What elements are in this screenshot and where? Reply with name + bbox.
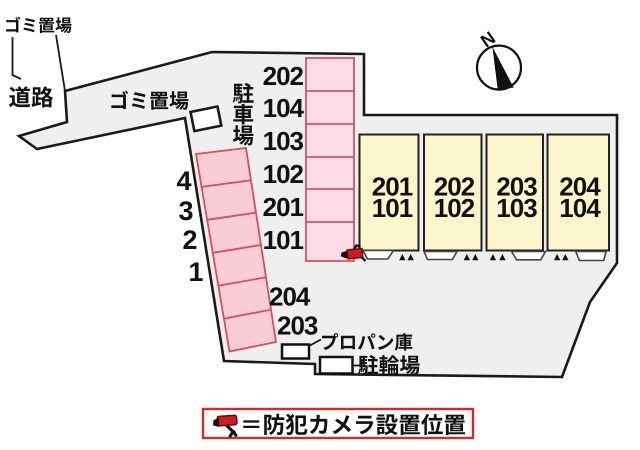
svg-text:201: 201 bbox=[263, 192, 304, 222]
svg-text:202: 202 bbox=[263, 61, 304, 91]
svg-text:2: 2 bbox=[182, 225, 197, 255]
svg-text:103: 103 bbox=[263, 126, 304, 156]
svg-text:102: 102 bbox=[263, 159, 304, 189]
svg-text:104: 104 bbox=[263, 93, 305, 123]
svg-text:1: 1 bbox=[188, 257, 203, 287]
svg-text:203: 203 bbox=[277, 311, 318, 341]
svg-text:204: 204 bbox=[269, 282, 311, 312]
svg-text:104: 104 bbox=[559, 193, 601, 223]
svg-text:103: 103 bbox=[496, 193, 537, 223]
svg-text:101: 101 bbox=[263, 225, 304, 255]
svg-text:4: 4 bbox=[176, 166, 191, 196]
svg-text:3: 3 bbox=[178, 196, 193, 226]
svg-text:101: 101 bbox=[372, 193, 413, 223]
svg-text:102: 102 bbox=[434, 193, 475, 223]
